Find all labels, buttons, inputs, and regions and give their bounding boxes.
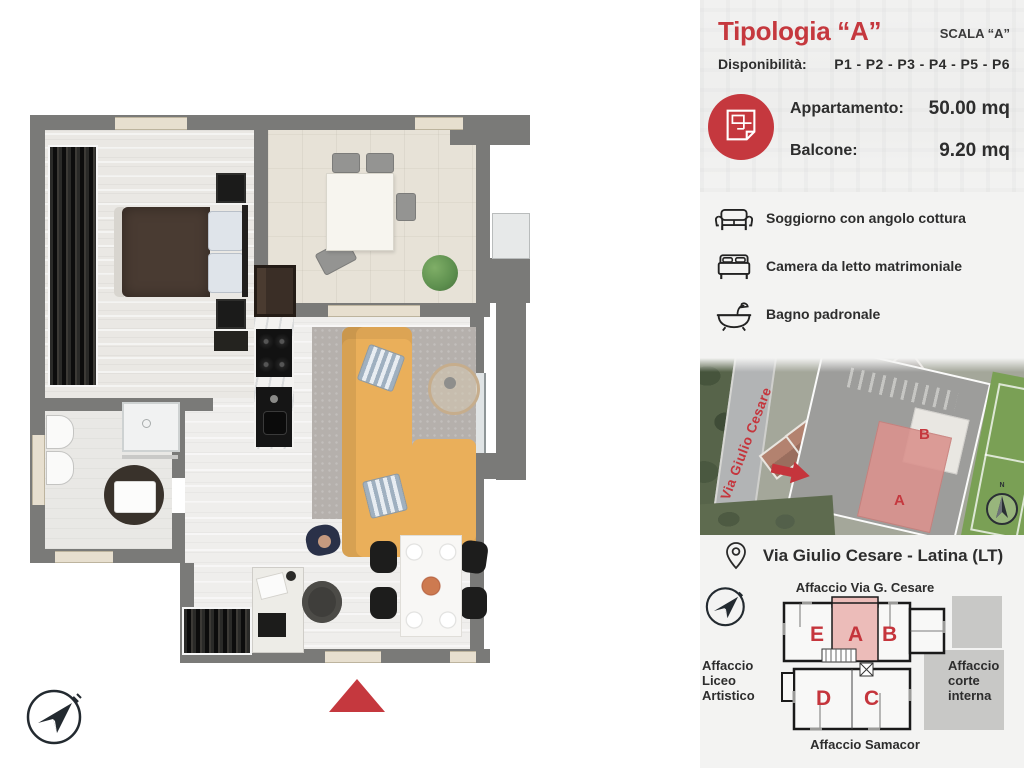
wall-bedroom-hall [185, 398, 213, 411]
shower-drain [142, 419, 151, 428]
wall-neighbor-connector [484, 453, 526, 479]
feature-bedroom: Camera da letto matrimoniale [700, 246, 1024, 292]
balcony-chair-3 [396, 193, 416, 221]
person-head [318, 535, 331, 548]
toilet [46, 415, 74, 449]
balcony-chair-2 [366, 153, 394, 173]
plant [422, 255, 458, 291]
map-building-b-label: B [919, 426, 930, 443]
siteplan-drawing: E A B D C [780, 593, 950, 737]
balcony-size-label: Balcone: [790, 142, 858, 160]
exterior-cabinet [492, 213, 530, 259]
compass-icon [24, 685, 86, 747]
siteplan-unit-a: A [848, 623, 863, 646]
sink-bowl [263, 411, 287, 435]
window-bottom-right [450, 651, 476, 663]
nightstand-bottom [216, 299, 246, 329]
affaccio-bottom-label: Affaccio Samacor [785, 737, 945, 752]
vanity-sink [114, 481, 156, 513]
dining-chair-1 [370, 541, 397, 573]
dining-chair-2 [370, 587, 397, 619]
siteplan-unit-d: D [816, 687, 831, 710]
bathtub-icon [712, 296, 756, 336]
apartment-size-label: Appartamento: [790, 100, 904, 118]
window-bathroom [32, 435, 45, 505]
balcony-size-value: 9.20 mq [939, 140, 1010, 162]
desk-cup [286, 571, 296, 581]
scala-label: SCALA “A” [940, 26, 1010, 41]
coffee-table [428, 363, 480, 415]
feature-living-label: Soggiorno con angolo cottura [766, 210, 966, 226]
towel-bar [122, 455, 178, 459]
affaccio-right-label: Affaccio corte interna [948, 658, 1024, 703]
desk-pad [258, 613, 286, 637]
siteplan-compass-icon [704, 584, 748, 628]
office-chair [302, 581, 342, 623]
aerial-map: B A Via Giulio Cesare N [700, 358, 1024, 535]
feature-living: Soggiorno con angolo cottura [700, 198, 1024, 244]
map-parking-stalls [847, 368, 959, 412]
nightstand-top [216, 173, 246, 203]
brochure-page: Tipologia “A” SCALA “A” Disponibilità: P… [0, 0, 1024, 768]
exterior-cutout [44, 563, 180, 677]
floorplan-badge [708, 94, 774, 160]
map-compass-icon: N [984, 491, 1020, 527]
north-triangle [329, 679, 385, 712]
window-balcony-top [415, 117, 463, 130]
feature-bathroom-label: Bagno padronale [766, 306, 880, 322]
wall-shaft-block [490, 258, 530, 303]
availability-label: Disponibilità: [718, 56, 807, 72]
map-building-a-label: A [894, 492, 905, 509]
balcony-chair-1 [332, 153, 360, 173]
info-panel: Tipologia “A” SCALA “A” Disponibilità: P… [700, 0, 1024, 768]
siteplan-unit-b: B [882, 623, 897, 646]
door-bottom [325, 651, 381, 663]
door-entrance [55, 551, 113, 563]
location-pin-icon [724, 541, 748, 571]
bed-icon [712, 248, 756, 288]
sofa-icon [712, 200, 756, 240]
apartment-size-value: 50.00 mq [929, 98, 1010, 120]
siteplan-unit-c: C [864, 687, 879, 710]
door-balcony [328, 305, 420, 317]
cooktop [256, 329, 292, 377]
feature-bedroom-label: Camera da letto matrimoniale [766, 258, 962, 274]
wardrobe-hall [182, 607, 252, 655]
availability-floors: P1 - P2 - P3 - P4 - P5 - P6 [834, 56, 1010, 72]
siteplan-section: Affaccio Via G. Cesare Affaccio Liceo Ar… [700, 577, 1024, 768]
floorplan [30, 115, 542, 677]
sink-faucet [270, 395, 278, 403]
coffee-table-decor [444, 377, 456, 389]
bed-duvet [122, 207, 210, 297]
wall-bedroom-balcony [254, 130, 268, 270]
siteplan-unit-e: E [810, 623, 824, 646]
shaft-notch [490, 145, 530, 211]
window-bedroom [115, 117, 187, 130]
balcony-table [326, 173, 394, 251]
feature-bathroom: Bagno padronale [700, 294, 1024, 340]
typology-title: Tipologia “A” [718, 16, 881, 47]
bidet [46, 451, 74, 485]
floorplan-doc-icon [720, 104, 762, 151]
tv-bench [214, 331, 248, 351]
address-row: Via Giulio Cesare - Latina (LT) [700, 535, 1024, 577]
bed-pillow-2 [208, 253, 244, 293]
shower [122, 402, 180, 452]
dining-chair-3 [458, 539, 489, 574]
wardrobe-bedroom [48, 145, 98, 387]
dining-chair-4 [460, 587, 487, 619]
affaccio-left-label: Affaccio Liceo Artistico [702, 658, 784, 703]
bed-pillow-1 [208, 211, 244, 251]
siteplan-court-block-upper [952, 596, 1002, 648]
dining-table [400, 535, 462, 637]
address-text: Via Giulio Cesare - Latina (LT) [752, 546, 1014, 566]
bed-headboard [242, 205, 248, 297]
map-arrow [768, 458, 812, 488]
wall-balcony-right [476, 130, 490, 317]
kitchen-tall-unit [254, 265, 296, 317]
